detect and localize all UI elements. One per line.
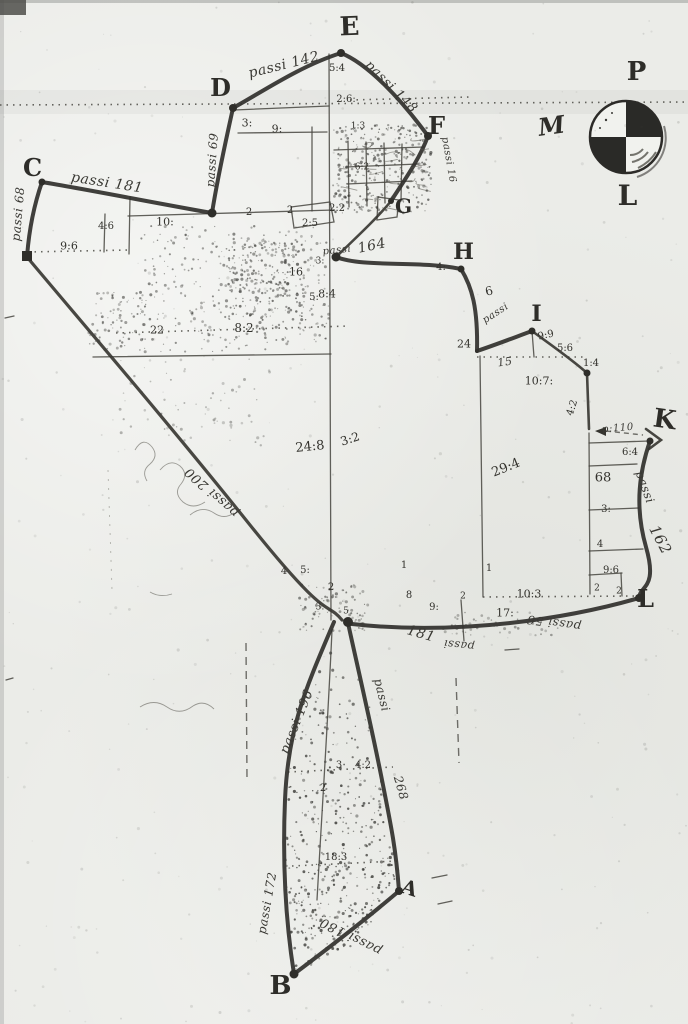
arrow-icon — [595, 427, 606, 436]
vertex-markers — [22, 49, 654, 979]
stipple-texture — [2, 1, 688, 1024]
parcel-lines — [5, 54, 649, 904]
dotted-construction-lines — [0, 97, 688, 866]
map-drawing — [0, 0, 688, 1024]
compass-rose — [590, 101, 666, 177]
scanned-survey-map: EDFGCHIKLABPMLpassi 142passi 148passi 69… — [0, 0, 688, 1024]
compass-quadrant-sw — [590, 137, 626, 173]
dashed-lines — [246, 431, 643, 779]
compass-quadrant-ne — [626, 101, 662, 137]
